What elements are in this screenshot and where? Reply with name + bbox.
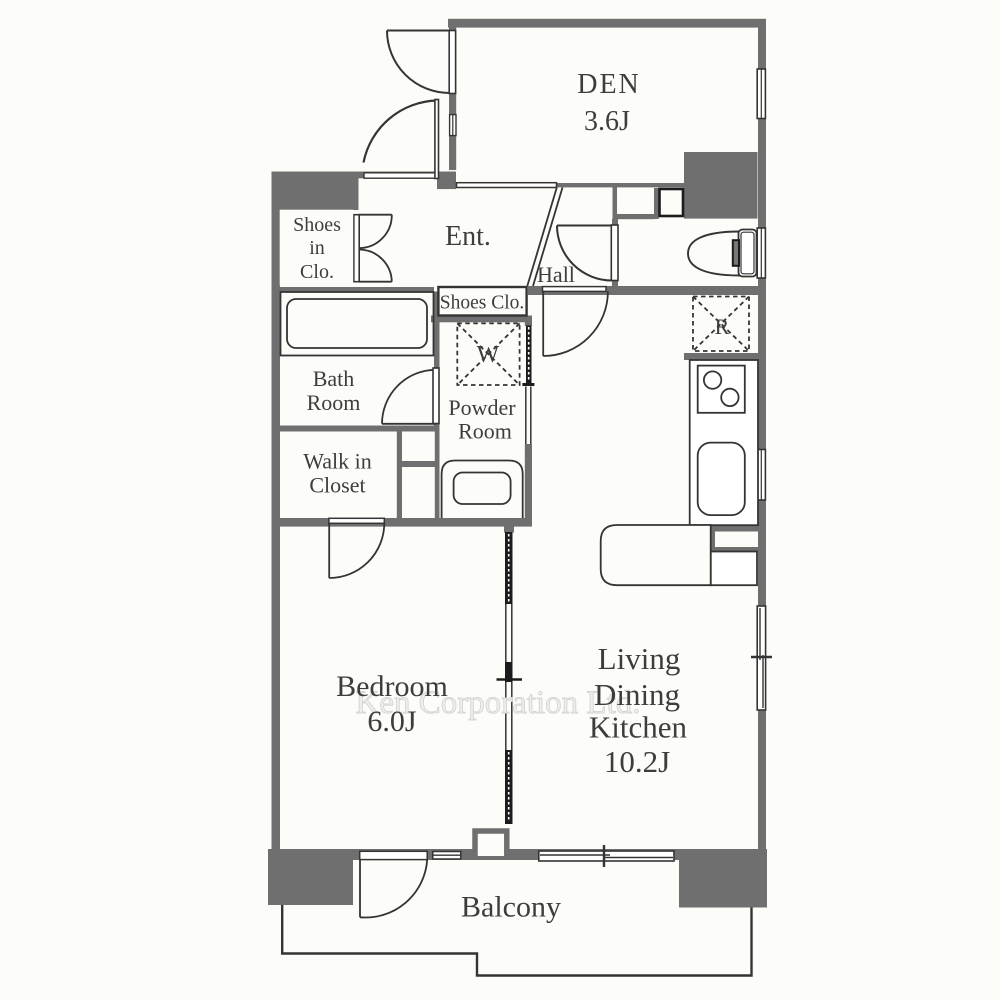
svg-text:Ent.: Ent.	[445, 221, 491, 252]
svg-text:Hall: Hall	[537, 262, 575, 287]
svg-text:Walk in: Walk in	[303, 449, 372, 474]
svg-text:Bath: Bath	[313, 366, 355, 391]
svg-text:Dining: Dining	[594, 677, 680, 712]
svg-text:Room: Room	[307, 390, 361, 415]
svg-text:6.0J: 6.0J	[367, 705, 417, 738]
svg-text:in: in	[309, 237, 325, 259]
svg-text:Balcony: Balcony	[461, 891, 561, 924]
svg-text:3.6J: 3.6J	[584, 106, 630, 137]
svg-text:Shoes Clo.: Shoes Clo.	[440, 293, 525, 314]
svg-text:R: R	[715, 314, 730, 339]
svg-text:Powder: Powder	[448, 395, 516, 420]
svg-text:Shoes: Shoes	[293, 214, 341, 236]
svg-text:Kitchen: Kitchen	[589, 710, 688, 745]
svg-text:Clo.: Clo.	[300, 261, 334, 283]
svg-text:DEN: DEN	[577, 69, 641, 100]
svg-text:W: W	[477, 342, 500, 368]
svg-text:Closet: Closet	[309, 473, 365, 498]
svg-text:Bedroom: Bedroom	[336, 670, 448, 703]
svg-text:Room: Room	[458, 419, 512, 444]
svg-text:10.2J: 10.2J	[604, 744, 670, 779]
svg-text:Living: Living	[598, 641, 681, 676]
